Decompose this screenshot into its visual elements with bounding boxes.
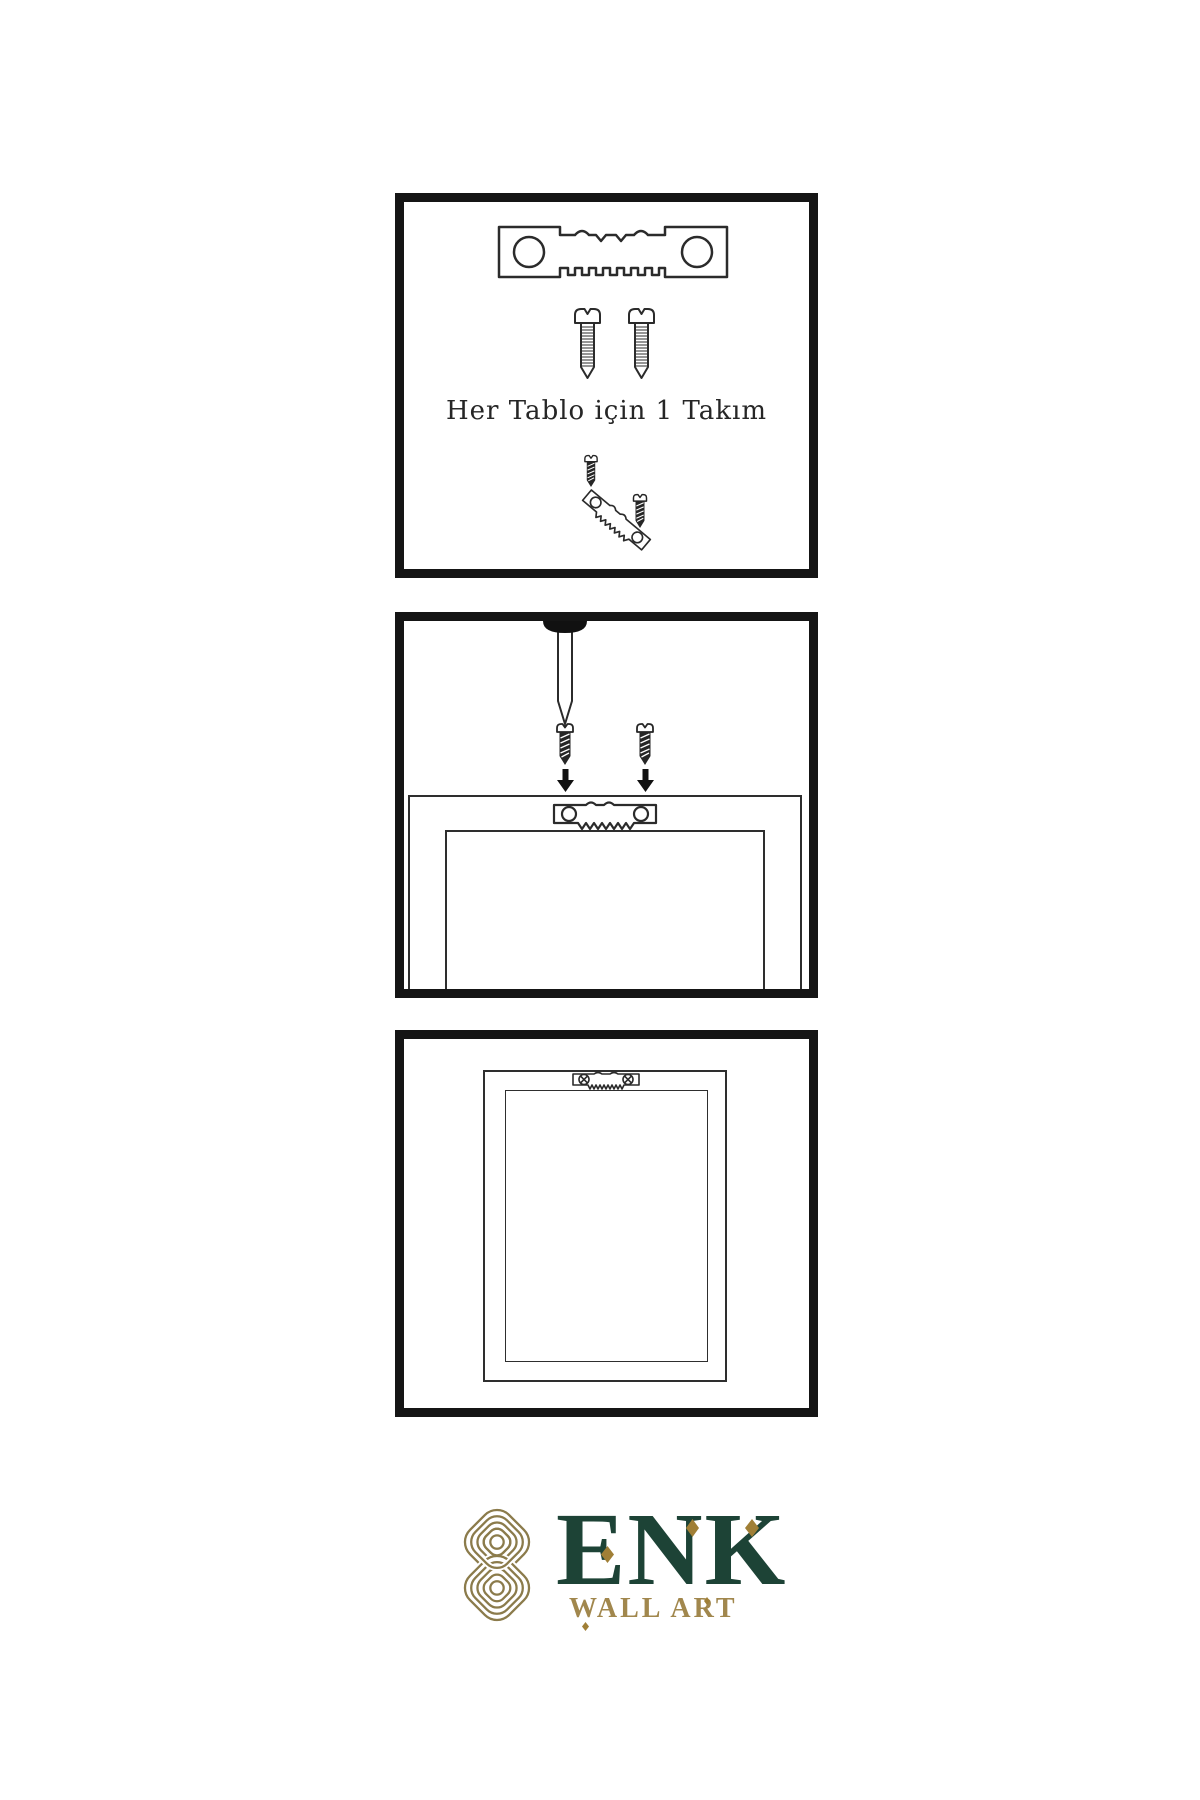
arrow-down-icon xyxy=(637,769,654,792)
kit-caption: Her Tablo için 1 Takım xyxy=(404,396,809,426)
screw-icon xyxy=(626,306,657,380)
frame-inner-outline xyxy=(445,830,765,989)
nail-icon xyxy=(542,621,588,729)
dark-screw-icon xyxy=(555,722,575,765)
installed-hanger-icon xyxy=(572,1071,640,1091)
dark-screw-icon xyxy=(635,722,655,765)
brand-subtitle: WALL ART xyxy=(569,1595,738,1623)
hung-frame-inner xyxy=(505,1090,708,1362)
knot-logo-icon xyxy=(434,1502,560,1628)
mounted-hanger-icon xyxy=(552,799,658,831)
instruction-sheet: Her Tablo için 1 Takım xyxy=(0,0,1200,1800)
dark-screw-icon xyxy=(631,493,649,528)
step-2-panel xyxy=(395,612,818,998)
step-1-panel: Her Tablo için 1 Takım xyxy=(395,193,818,578)
arrow-down-icon xyxy=(557,769,574,792)
step-3-panel xyxy=(395,1030,818,1417)
screw-icon xyxy=(572,306,603,380)
dark-screw-icon xyxy=(582,454,600,487)
brand-name: ENK xyxy=(556,1498,787,1602)
sawtooth-hanger-icon xyxy=(497,225,729,279)
